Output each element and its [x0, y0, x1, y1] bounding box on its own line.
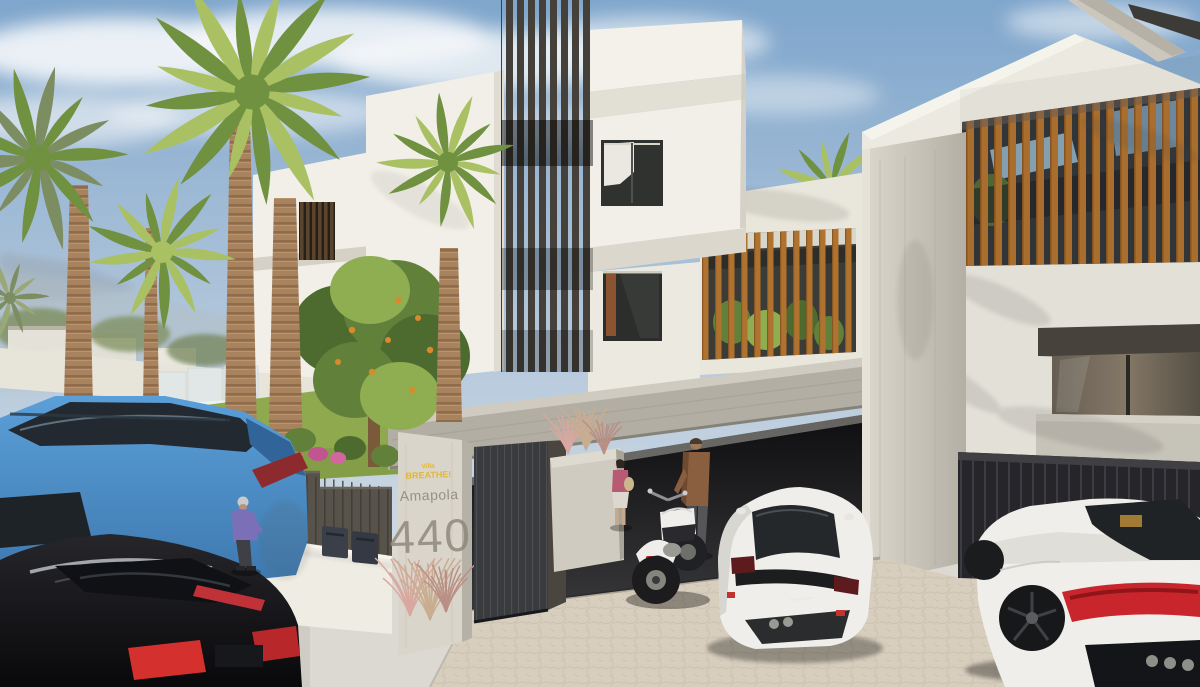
engine: [663, 543, 681, 557]
sign-house-number: 440: [388, 509, 473, 564]
top-floor-volume: [588, 20, 746, 272]
architectural-render: Villa BREATHE! Amapola 440: [0, 0, 1200, 687]
lower-window: [603, 271, 662, 341]
handbag: [624, 477, 634, 491]
reflector: [727, 592, 735, 598]
render-canvas: Villa BREATHE! Amapola 440: [0, 0, 1200, 687]
license-plate-area: [215, 645, 263, 667]
engine-detail: [1120, 515, 1142, 527]
pedestrian-woman: [231, 497, 311, 581]
white-supercar: [964, 498, 1200, 687]
mailbox: [352, 531, 378, 565]
front-wheel: [964, 540, 1004, 580]
upper-window: [601, 140, 663, 206]
taillight-left: [731, 556, 755, 574]
side-mirror: [736, 508, 746, 515]
sign-logo-main: BREATHE!: [405, 469, 451, 481]
exhaust-tip: [1182, 659, 1194, 671]
sign-street-name: Amapola: [399, 486, 458, 504]
exhaust-tip: [1164, 657, 1176, 669]
palm-trunk: [436, 248, 462, 422]
side-mirror: [844, 514, 854, 521]
concrete-pillar: [862, 132, 966, 585]
reflector: [836, 610, 845, 616]
exhaust-tip: [769, 619, 779, 629]
louver-fins: [501, 0, 593, 372]
mailbox: [322, 526, 348, 559]
exhaust-tip: [783, 617, 793, 627]
annex-louver-window: [299, 202, 335, 260]
exhaust-tip: [1146, 655, 1158, 667]
